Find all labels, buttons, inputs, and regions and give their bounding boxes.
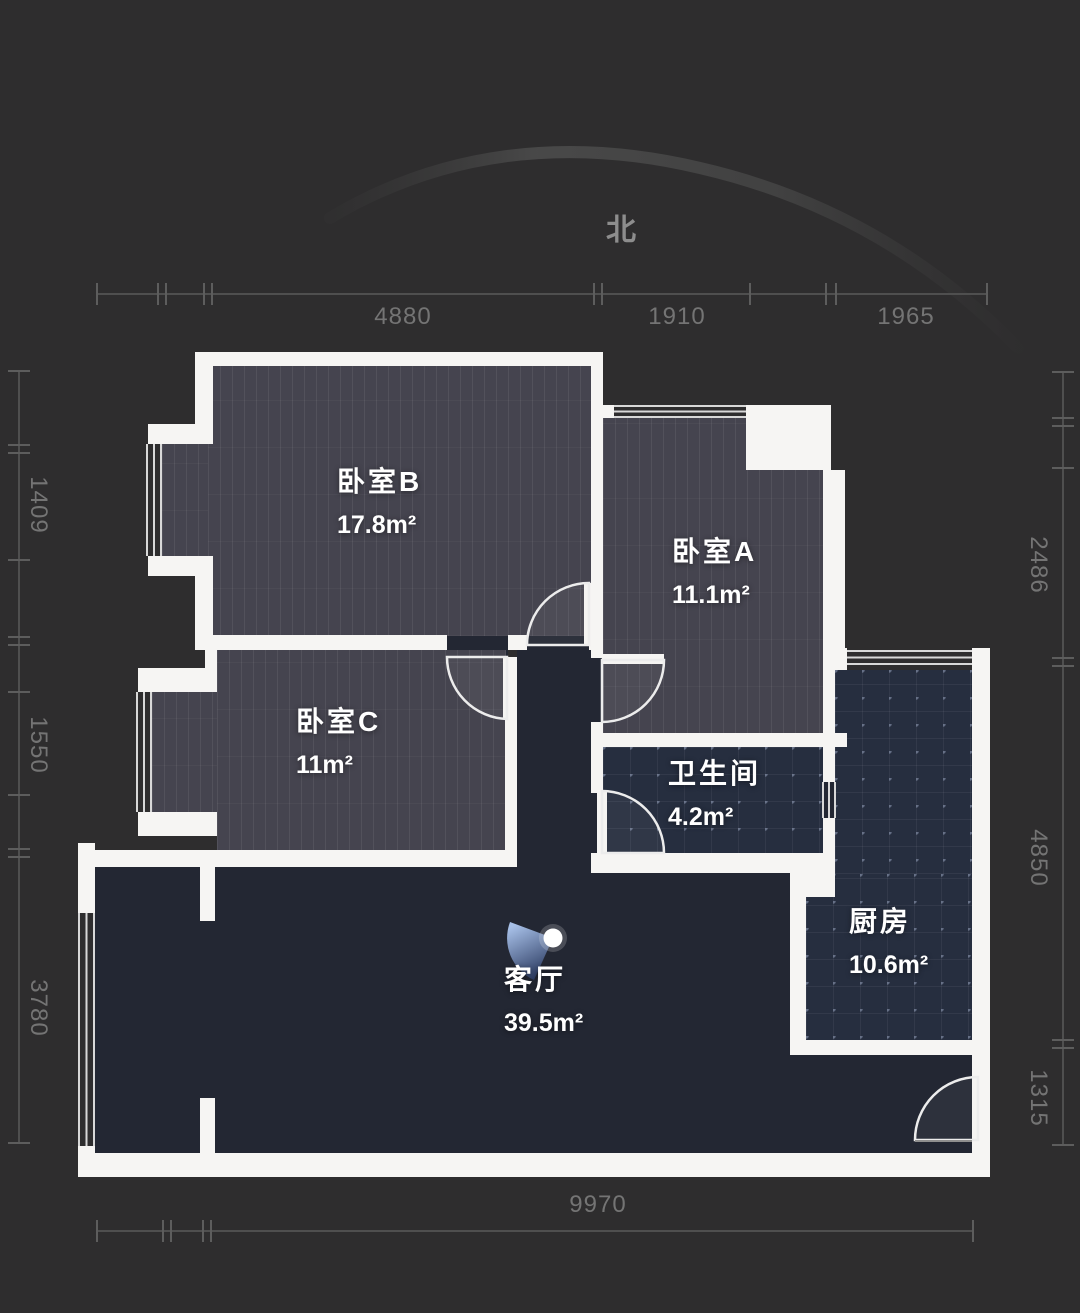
door-arc-bedroom-c — [447, 657, 507, 719]
room-label-kitchen: 厨房 10.6m² — [849, 900, 928, 980]
room-label-bedroom-c: 卧室C 11m² — [296, 700, 381, 780]
room-area: 4.2m² — [668, 803, 761, 832]
room-name: 卧室A — [672, 530, 757, 570]
room-name: 厨房 — [849, 900, 928, 940]
room-label-bedroom-a: 卧室A 11.1m² — [672, 530, 757, 610]
camera-dot — [544, 929, 563, 948]
door-arc-entry — [915, 1077, 978, 1140]
room-area: 11m² — [296, 751, 381, 780]
room-name: 卧室C — [296, 700, 381, 740]
room-area: 10.6m² — [849, 951, 928, 980]
door-arc-bathroom — [602, 791, 664, 853]
room-name: 卫生间 — [668, 752, 761, 792]
room-name: 客厅 — [504, 958, 583, 998]
door-arc-bedroom-a — [602, 660, 664, 722]
room-label-living-room: 客厅 39.5m² — [504, 958, 583, 1038]
door-arc-bedroom-b — [527, 583, 589, 645]
room-label-bathroom: 卫生间 4.2m² — [668, 752, 761, 832]
door-arcs — [0, 0, 1080, 1313]
room-label-bedroom-b: 卧室B 17.8m² — [337, 460, 422, 540]
floor-plan: 北 4880 1910 1965 9970 1409 1550 3780 248… — [0, 0, 1080, 1313]
room-area: 11.1m² — [672, 581, 757, 610]
room-area: 17.8m² — [337, 511, 422, 540]
room-name: 卧室B — [337, 460, 422, 500]
room-area: 39.5m² — [504, 1009, 583, 1038]
